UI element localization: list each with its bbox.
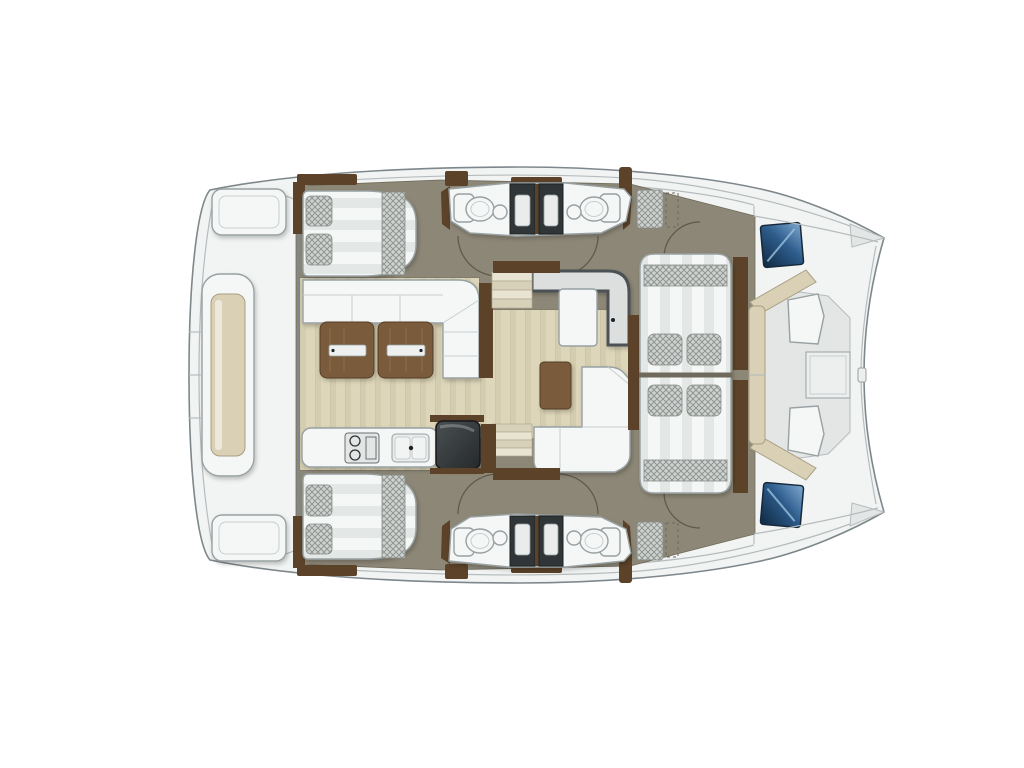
cooktop bbox=[345, 433, 379, 463]
coffee-table bbox=[540, 362, 571, 409]
cabin-port-aft bbox=[303, 191, 416, 276]
berth-runner bbox=[644, 265, 727, 286]
fridge-trim bbox=[430, 468, 484, 474]
pillow bbox=[648, 385, 682, 416]
washbasin bbox=[493, 205, 507, 219]
bulkhead-trim bbox=[493, 261, 560, 273]
bow-berth-lounge bbox=[628, 254, 748, 493]
tender-platform-highlight bbox=[215, 300, 222, 450]
cabin-starboard-aft bbox=[303, 474, 416, 559]
sofa-side-panel bbox=[479, 283, 493, 378]
berth-divider bbox=[639, 373, 732, 378]
bulkhead-trim bbox=[493, 468, 560, 480]
berth-rail-right bbox=[733, 257, 748, 370]
screenshot-root bbox=[0, 0, 1024, 768]
shower-divider bbox=[535, 184, 539, 234]
fridge bbox=[436, 421, 480, 469]
pillow bbox=[687, 385, 721, 416]
bathrooms-port bbox=[441, 183, 632, 236]
pillow bbox=[306, 524, 332, 554]
counter-fitting bbox=[611, 318, 615, 322]
pillow bbox=[687, 334, 721, 365]
bathrooms-starboard bbox=[441, 514, 632, 567]
shower-divider bbox=[535, 516, 539, 566]
bed-runner-port bbox=[382, 192, 405, 275]
deck-locker-patch-bottom bbox=[637, 522, 663, 560]
deck-locker-patch-top bbox=[637, 190, 663, 228]
berth-rail-left bbox=[628, 315, 639, 430]
counter-cabinet bbox=[559, 289, 597, 346]
shower-tray bbox=[515, 524, 530, 555]
bed-runner-starboard bbox=[382, 475, 405, 558]
pillow bbox=[306, 485, 332, 516]
berth-runner bbox=[644, 460, 727, 481]
deck-hatch-port bbox=[760, 222, 804, 267]
pillow bbox=[648, 334, 682, 365]
shower-tray bbox=[515, 195, 530, 226]
washbasin bbox=[567, 531, 581, 545]
bow-rim-fitting bbox=[858, 368, 866, 382]
galley-sink bbox=[392, 434, 429, 462]
wardrobe-trim bbox=[445, 564, 468, 579]
washbasin bbox=[493, 531, 507, 545]
deck-hatch-starboard bbox=[760, 482, 804, 527]
wardrobe-trim bbox=[297, 565, 357, 576]
wardrobe-trim bbox=[445, 171, 468, 186]
pillow bbox=[306, 196, 332, 226]
foredeck-seat-bottom bbox=[788, 406, 824, 456]
stairs-port bbox=[492, 272, 532, 308]
stair-side-panel bbox=[481, 424, 496, 473]
stairs-starboard bbox=[492, 424, 532, 456]
foredeck-footwell bbox=[806, 352, 850, 398]
shower-tray bbox=[544, 524, 558, 555]
pillow bbox=[306, 234, 332, 265]
shower-tray bbox=[544, 195, 558, 226]
catamaran-floorplan-image bbox=[0, 0, 1024, 768]
berth-rail-right bbox=[733, 380, 748, 493]
wardrobe-trim bbox=[297, 174, 357, 185]
washbasin bbox=[567, 205, 581, 219]
foredeck-seat-top bbox=[788, 294, 824, 344]
